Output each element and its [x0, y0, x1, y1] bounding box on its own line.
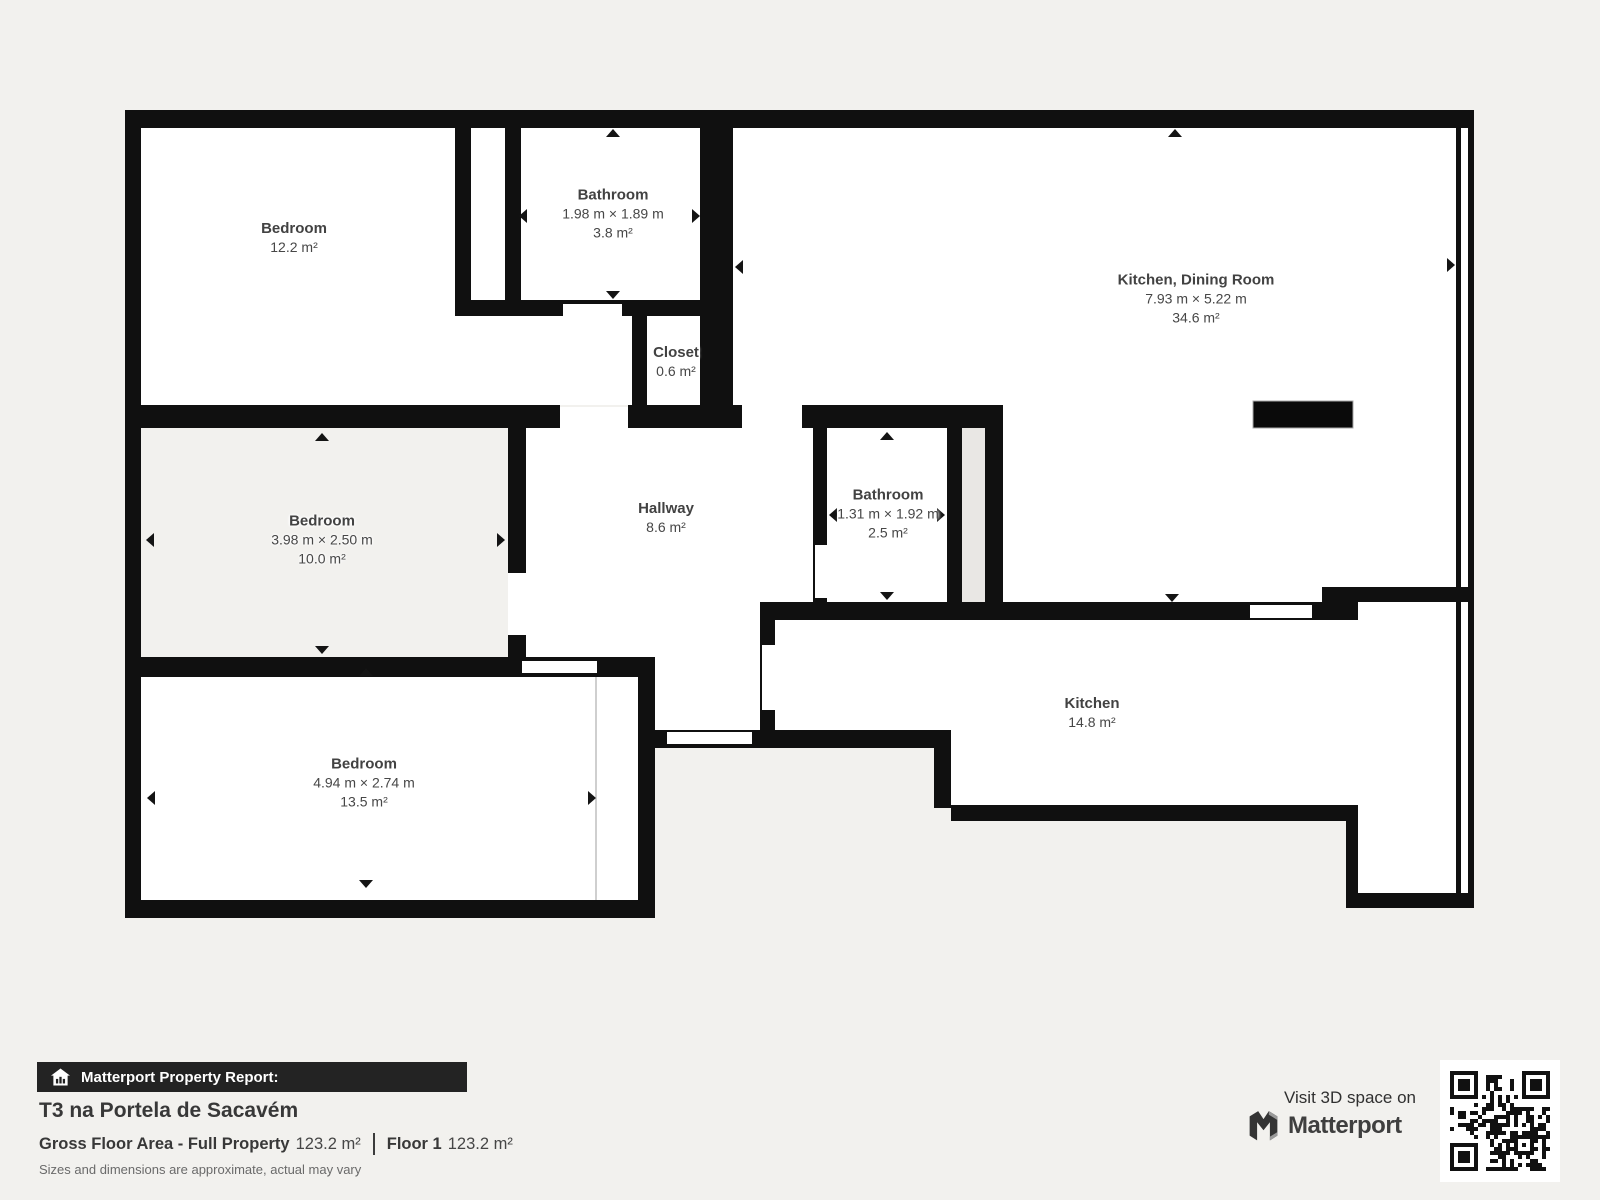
room-label-bathroom-top: Bathroom 1.98 m × 1.89 m 3.8 m²	[562, 186, 664, 243]
shaft-area	[962, 428, 985, 602]
room-area: 2.5 m²	[837, 524, 939, 543]
room-area: 34.6 m²	[1118, 309, 1275, 328]
room-label-bedroom-bottom: Bedroom 4.94 m × 2.74 m 13.5 m²	[313, 755, 415, 812]
room-dimensions: 3.98 m × 2.50 m	[271, 531, 373, 550]
matterport-logo-icon	[1248, 1110, 1279, 1142]
room-area: 12.2 m²	[261, 238, 327, 257]
room-dimensions: 1.31 m × 1.92 m	[837, 505, 939, 524]
room-name: Bathroom	[837, 486, 939, 505]
room-name: Kitchen	[1064, 694, 1119, 713]
room-name: Bathroom	[562, 186, 664, 205]
floor-value: 123.2 m²	[448, 1135, 513, 1154]
room-name: Hallway	[638, 499, 694, 518]
room-label-closet: Closet 0.6 m²	[653, 343, 699, 381]
room-area: 0.6 m²	[653, 362, 699, 381]
room-area: 10.0 m²	[271, 550, 373, 569]
area-stats-row: Gross Floor Area - Full Property 123.2 m…	[39, 1133, 513, 1155]
report-badge-bar: Matterport Property Report:	[37, 1062, 467, 1092]
fixed-counter-block	[1253, 401, 1353, 428]
property-title: T3 na Portela de Sacavém	[39, 1099, 298, 1123]
room-name: Bedroom	[261, 219, 327, 238]
floor-plan-page: Bedroom 12.2 m² Bathroom 1.98 m × 1.89 m…	[0, 0, 1600, 1200]
room-name: Bedroom	[313, 755, 415, 774]
house-icon	[51, 1068, 70, 1086]
room-area: 3.8 m²	[562, 224, 664, 243]
floor-plan	[0, 0, 1600, 1200]
room-label-kitchen: Kitchen 14.8 m²	[1064, 694, 1119, 732]
qr-code	[1440, 1060, 1560, 1182]
room-label-bedroom-middle: Bedroom 3.98 m × 2.50 m 10.0 m²	[271, 512, 373, 569]
room-label-bedroom-top-left: Bedroom 12.2 m²	[261, 219, 327, 257]
matterport-logo: Matterport	[1248, 1110, 1402, 1142]
room-label-bathroom-middle: Bathroom 1.31 m × 1.92 m 2.5 m²	[837, 486, 939, 543]
floor-label: Floor 1	[387, 1135, 442, 1154]
room-area: 13.5 m²	[313, 793, 415, 812]
room-label-hallway: Hallway 8.6 m²	[638, 499, 694, 537]
divider	[373, 1133, 375, 1155]
window-strip	[1461, 128, 1468, 893]
room-name: Kitchen, Dining Room	[1118, 271, 1275, 290]
room-divider-line	[595, 677, 597, 900]
visit-3d-space-text: Visit 3D space on	[1250, 1088, 1450, 1108]
room-area: 14.8 m²	[1064, 713, 1119, 732]
room-dimensions: 4.94 m × 2.74 m	[313, 774, 415, 793]
disclaimer-text: Sizes and dimensions are approximate, ac…	[39, 1162, 361, 1177]
gross-floor-area-label: Gross Floor Area - Full Property	[39, 1135, 290, 1154]
room-name: Bedroom	[271, 512, 373, 531]
matterport-wordmark: Matterport	[1288, 1112, 1402, 1140]
room-label-kitchen-dining: Kitchen, Dining Room 7.93 m × 5.22 m 34.…	[1118, 271, 1275, 328]
room-area: 8.6 m²	[638, 518, 694, 537]
room-dimensions: 1.98 m × 1.89 m	[562, 205, 664, 224]
gross-floor-area-value: 123.2 m²	[296, 1135, 361, 1154]
room-name: Closet	[653, 343, 699, 362]
report-badge-label: Matterport Property Report:	[81, 1069, 279, 1086]
room-dimensions: 7.93 m × 5.22 m	[1118, 290, 1275, 309]
